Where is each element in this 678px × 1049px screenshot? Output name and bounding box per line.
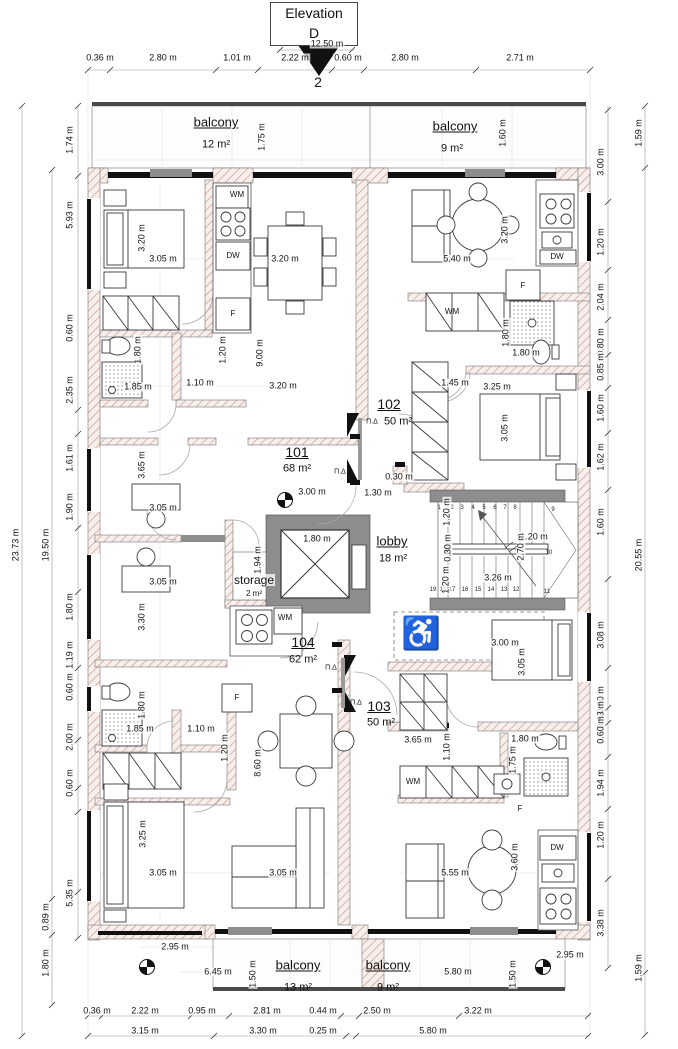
dim-label: 3.00 m xyxy=(297,488,327,497)
room-area: 12 m² xyxy=(201,140,231,151)
dim-label: 3.20 m xyxy=(501,215,510,245)
dim-label: 0.36 m xyxy=(85,54,115,63)
dim-label: 1.20 m xyxy=(597,820,606,850)
dim-label: 6.45 m xyxy=(203,968,233,977)
dim-label: 1.60 m xyxy=(597,507,606,537)
dim-label: 1.10 m xyxy=(186,725,216,734)
dim-label: 2.95 m xyxy=(160,943,190,952)
dim-label: 3.30 m xyxy=(138,602,147,632)
dim-label: 3.26 m xyxy=(483,574,513,583)
dim-label: 1.50 m xyxy=(509,959,518,989)
dim-label: 1.01 m xyxy=(222,54,252,63)
dim-label: 2.00 m xyxy=(66,722,75,752)
room-area: 13 m² xyxy=(283,983,313,994)
dim-label: 0.30 m xyxy=(444,533,453,563)
door-marker: Π.Δ xyxy=(365,419,379,426)
door-marker: Π.Δ xyxy=(333,469,347,476)
floor-plan-drawing xyxy=(0,0,678,1049)
elevator xyxy=(266,515,370,613)
washing-machine-label: WM xyxy=(444,308,460,316)
stair-step-number: 9 xyxy=(551,507,554,513)
dim-label: 3.05 m xyxy=(518,647,527,677)
unit-number-101: 101 xyxy=(284,445,309,459)
dim-label: 0.25 m xyxy=(308,1027,338,1036)
unit-area-104: 62 m² xyxy=(288,655,318,666)
dim-label: 5.80 m xyxy=(418,1027,448,1036)
stair-step-number: 19 xyxy=(430,587,437,593)
dim-label: 3.25 m xyxy=(139,819,148,849)
wall-left xyxy=(87,168,100,940)
dim-label: 1.62 m xyxy=(597,442,606,472)
fridge-label: F xyxy=(230,310,237,318)
stair-step-number: 8 xyxy=(513,505,516,511)
fridge-label: F xyxy=(520,282,527,290)
dim-label: 9.00 m xyxy=(256,338,265,368)
unit-area-102: 50 m² xyxy=(383,417,413,428)
dim-label: 8.60 m xyxy=(254,748,263,778)
dim-label: 1.20 m xyxy=(597,227,606,257)
dim-label: 3.60 m xyxy=(511,842,520,872)
dim-label: 3.05 m xyxy=(148,869,178,878)
dim-label: 5.55 m xyxy=(440,869,470,878)
room-label-balcony-bl: balcony xyxy=(275,959,322,972)
dim-label: 0.60 m xyxy=(66,313,75,343)
dim-label: 19.50 m xyxy=(42,528,51,563)
dim-label: 3.38 m xyxy=(597,908,606,938)
dim-label: 2.50 m xyxy=(362,1007,392,1016)
unit-area-103: 50 m² xyxy=(366,718,396,729)
balcony-top xyxy=(92,102,586,168)
dim-label: 3.08 m xyxy=(597,620,606,650)
door-marker: Π.Δ xyxy=(349,700,363,707)
dim-label: 1.94 m xyxy=(597,768,606,798)
dim-label: 3.65 m xyxy=(138,450,147,480)
wheelchair-icon: ♿ xyxy=(401,614,441,652)
dim-label: 1.80 m xyxy=(502,318,511,348)
dim-label: 2.71 m xyxy=(505,54,535,63)
dim-label: 3.15 m xyxy=(130,1027,160,1036)
room-area: 18 m² xyxy=(378,554,408,565)
dim-label: 3.22 m xyxy=(463,1007,493,1016)
elevation-number: 2 xyxy=(314,74,322,90)
dim-label: 3.20 m xyxy=(138,223,147,253)
dim-label: 1.85 m xyxy=(123,383,153,392)
wall-right xyxy=(578,168,591,940)
stair-step-number: 12 xyxy=(513,587,520,593)
stair-step-number: 10 xyxy=(546,550,553,556)
dim-label: 5.93 m xyxy=(66,200,75,230)
dim-label: 1.61 m xyxy=(66,443,75,473)
dim-label: 5.80 m xyxy=(443,968,473,977)
room-label-lobby: lobby xyxy=(375,535,408,548)
dim-label: 2.04 m xyxy=(597,282,606,312)
dim-label: 1.75 m xyxy=(509,745,518,775)
dim-label: 1.45 m xyxy=(440,379,470,388)
dim-label: 5.40 m xyxy=(442,255,472,264)
stair-step-number: 7 xyxy=(503,505,506,511)
stair-step-number: 6 xyxy=(493,505,496,511)
dim-label: 0.60 m xyxy=(66,768,75,798)
dim-label: 3.05 m xyxy=(148,504,178,513)
dim-label: 2.80 m xyxy=(148,54,178,63)
fridge-label: F xyxy=(234,694,241,702)
dim-label: 0.36 m xyxy=(82,1007,112,1016)
dim-label: 5.35 m xyxy=(66,878,75,908)
room-label-balcony-tr: balcony xyxy=(432,120,479,133)
wall-bottom xyxy=(88,925,590,939)
room-label-balcony-tl: balcony xyxy=(193,116,240,129)
dim-label: 3.05 m xyxy=(268,869,298,878)
lintel xyxy=(181,535,225,542)
dim-label: 1.59 m xyxy=(635,953,644,983)
stair-step-number: 5 xyxy=(482,505,485,511)
dim-label: 1.75 m xyxy=(258,122,267,152)
dim-label: 3.65 m xyxy=(403,736,433,745)
dim-label: 2.22 m xyxy=(280,54,310,63)
dim-label: 1.20 m xyxy=(442,565,451,595)
dim-label: 2.70 m xyxy=(517,532,526,562)
dim-label: 1.94 m xyxy=(254,545,263,575)
elevation-label: Elevation xyxy=(271,3,357,23)
unit-number-104: 104 xyxy=(290,635,315,649)
room-area: 9 m² xyxy=(440,144,464,155)
dim-label: 0.85 m xyxy=(597,352,606,382)
dim-label: 1.10 m xyxy=(185,379,215,388)
dim-label: 0.60 m xyxy=(333,54,363,63)
dim-label: 0.89 m xyxy=(42,902,51,932)
dim-label: 1.59 m xyxy=(635,118,644,148)
stair-step-number: 14 xyxy=(488,587,495,593)
washing-machine-label: WM xyxy=(405,778,421,786)
dim-label: 1.60 m xyxy=(499,118,508,148)
dim-label: 2.22 m xyxy=(130,1007,160,1016)
dim-label: 2.35 m xyxy=(66,375,75,405)
dim-label: 1.80 m xyxy=(134,335,143,365)
fridge-label: F xyxy=(517,805,524,813)
dim-label: 3.00 m xyxy=(490,639,520,648)
unit-number-103: 103 xyxy=(366,699,391,713)
dim-label: 3.20 m xyxy=(270,255,300,264)
dim-label: 2.80 m xyxy=(390,54,420,63)
dim-label: 20.55 m xyxy=(635,538,644,573)
stair-step-number: 16 xyxy=(462,587,469,593)
dim-label: 3.05 m xyxy=(148,578,178,587)
stair-step-number: 15 xyxy=(475,587,482,593)
dim-label: 1.20 m xyxy=(443,497,452,527)
dim-label: 3.30 m xyxy=(248,1027,278,1036)
dim-label: 1.80 m xyxy=(66,592,75,622)
dishwasher-label: DW xyxy=(549,253,564,261)
washing-machine-label: WM xyxy=(229,191,245,199)
dim-label: 3.25 m xyxy=(482,383,512,392)
wall-top xyxy=(88,168,590,183)
dim-label: 1.90 m xyxy=(66,492,75,522)
room-label-storage: storage xyxy=(233,574,275,586)
dim-label: 0.44 m xyxy=(308,1007,338,1016)
room-area: 2 m² xyxy=(245,590,263,598)
room-area: 9 m² xyxy=(376,983,400,994)
dim-label: 1.74 m xyxy=(66,125,75,155)
unit-number-102: 102 xyxy=(376,397,401,411)
dim-label: 1.60 m xyxy=(597,393,606,423)
dim-label: 0.95 m xyxy=(187,1007,217,1016)
stair-step-number: 1 xyxy=(437,505,440,511)
stair-step-number: 4 xyxy=(471,505,474,511)
dim-label: 1.20 m xyxy=(219,335,228,365)
dim-label: 1.50 m xyxy=(249,959,258,989)
dim-label: 1.85 m xyxy=(125,725,155,734)
stair-step-number: 13 xyxy=(501,587,508,593)
dim-label: 2.95 m xyxy=(555,951,585,960)
unit-area-101: 68 m² xyxy=(282,464,312,475)
dim-label: 0.30 m xyxy=(384,473,414,482)
dishwasher-label: DW xyxy=(549,844,564,852)
dim-label: 1.80 m xyxy=(510,735,540,744)
dim-label: 1.10 m xyxy=(443,732,452,762)
stair-step-number: 3 xyxy=(460,505,463,511)
dim-label: 3.05 m xyxy=(148,255,178,264)
dim-label: 1.19 m xyxy=(66,640,75,670)
washing-machine-label: WM xyxy=(277,614,293,622)
dim-label: 23.73 m xyxy=(12,528,21,563)
dim-label: 1.80 m xyxy=(511,349,541,358)
dim-label: 3.20 m xyxy=(268,382,298,391)
floor-plan: Elevation D 12.50 m 2 0.36 m 2.80 m 1.01… xyxy=(0,0,678,1049)
dim-label: 1.30 m xyxy=(363,489,393,498)
dim-label: 0.60 m xyxy=(66,672,75,702)
dim-label: 3.00 m xyxy=(597,147,606,177)
dim-label: 0.60 m xyxy=(597,715,606,745)
dim-label: 12.50 m xyxy=(310,40,345,49)
door-marker: Π.Δ xyxy=(324,665,338,672)
dim-label: 3.05 m xyxy=(501,413,510,443)
dim-label: 1.80 m xyxy=(302,535,332,544)
dim-label: 2.81 m xyxy=(252,1007,282,1016)
dim-label: 1.20 m xyxy=(221,733,230,763)
dishwasher-label: DW xyxy=(225,252,240,260)
stair-step-number: 11 xyxy=(544,589,550,595)
dim-label: 1.80 m xyxy=(42,948,51,978)
room-label-balcony-br: balcony xyxy=(365,959,412,972)
dim-label: 1.80 m xyxy=(138,690,147,720)
